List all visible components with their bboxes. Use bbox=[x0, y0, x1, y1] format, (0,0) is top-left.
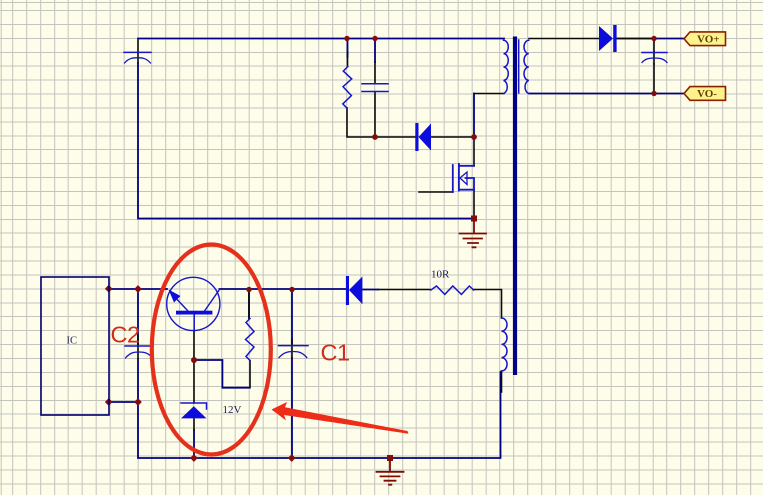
svg-text:12V: 12V bbox=[223, 404, 242, 416]
svg-text:C2: C2 bbox=[111, 321, 140, 347]
svg-text:10R: 10R bbox=[431, 268, 450, 280]
svg-text:VO+: VO+ bbox=[697, 34, 720, 46]
svg-text:IC: IC bbox=[67, 336, 78, 347]
svg-text:VO-: VO- bbox=[697, 88, 717, 100]
svg-text:C1: C1 bbox=[321, 339, 350, 365]
